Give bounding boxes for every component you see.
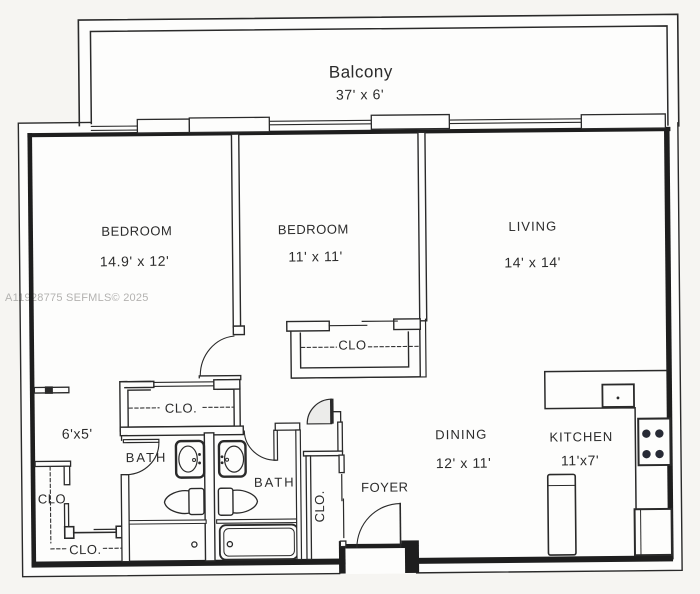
svg-text:A11928775 SEFMLS© 2025: A11928775 SEFMLS© 2025: [5, 292, 149, 304]
svg-text:14.9' x 12': 14.9' x 12': [100, 253, 170, 270]
svg-text:KITCHEN: KITCHEN: [549, 429, 613, 445]
svg-text:BATH: BATH: [126, 450, 168, 465]
svg-text:6'x5': 6'x5': [62, 425, 93, 441]
svg-text:BATH: BATH: [254, 475, 296, 490]
svg-text:CLO: CLO: [38, 491, 66, 506]
svg-text:CLO: CLO: [338, 337, 366, 352]
svg-text:11'x7': 11'x7': [561, 452, 599, 468]
svg-text:37' x 6': 37' x 6': [336, 86, 384, 102]
svg-text:LIVING: LIVING: [508, 219, 557, 234]
svg-text:Balcony: Balcony: [329, 62, 393, 82]
svg-text:BEDROOM: BEDROOM: [101, 223, 172, 239]
svg-text:CLO.: CLO.: [312, 490, 327, 522]
svg-text:FOYER: FOYER: [361, 479, 409, 494]
svg-text:CLO.: CLO.: [165, 400, 197, 415]
svg-text:BEDROOM: BEDROOM: [278, 222, 349, 238]
svg-text:CLO.: CLO.: [69, 542, 101, 557]
svg-text:12' x 11': 12' x 11': [436, 455, 492, 472]
svg-text:11' x 11': 11' x 11': [288, 248, 343, 265]
svg-text:DINING: DINING: [435, 427, 487, 442]
svg-text:14' x 14': 14' x 14': [504, 254, 561, 271]
